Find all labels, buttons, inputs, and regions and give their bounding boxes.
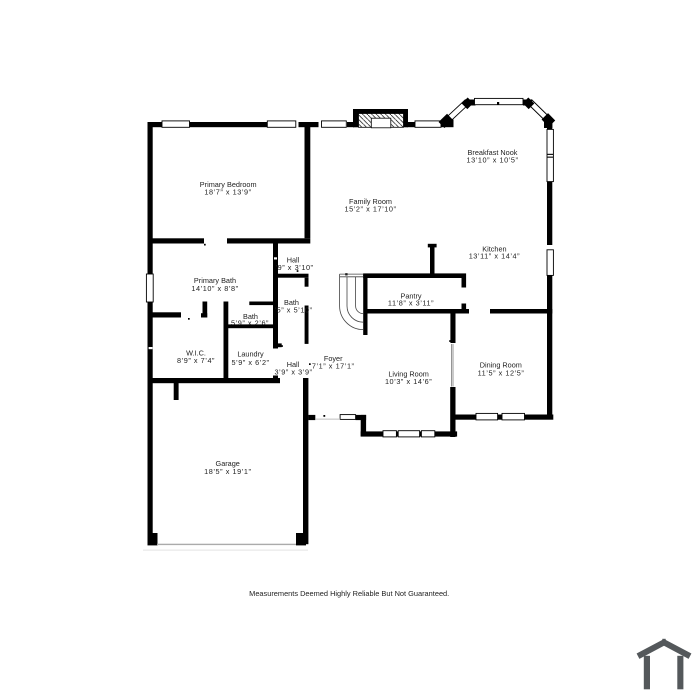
svg-text:13’11” x 14’4”: 13’11” x 14’4”: [469, 252, 520, 261]
svg-text:Measurements Deemed Highly Rel: Measurements Deemed Highly Reliable But …: [249, 589, 449, 598]
svg-text:18’5” x 19’1”: 18’5” x 19’1”: [204, 467, 251, 476]
svg-text:11’8” x 3’11”: 11’8” x 3’11”: [388, 299, 434, 308]
svg-text:’9” x 3’10”: ’9” x 3’10”: [275, 263, 313, 272]
svg-text:’5” x 5’10”: ’5” x 5’10”: [274, 306, 312, 315]
svg-text:8’9” x 7’4”: 8’9” x 7’4”: [177, 356, 215, 365]
svg-text:15’2” x 17’10”: 15’2” x 17’10”: [345, 205, 397, 214]
svg-text:11’5” x 12’5”: 11’5” x 12’5”: [478, 368, 525, 377]
svg-text:14’10” x 8’8”: 14’10” x 8’8”: [191, 284, 238, 293]
svg-text:7’1” x 17’1”: 7’1” x 17’1”: [312, 362, 355, 371]
svg-text:5’9” x 6’2”: 5’9” x 6’2”: [231, 358, 269, 367]
svg-text:3’9” x 3’9”: 3’9” x 3’9”: [274, 367, 312, 376]
svg-text:13’10” x 10’5”: 13’10” x 10’5”: [467, 156, 519, 165]
svg-text:18’7” x 13’9”: 18’7” x 13’9”: [204, 188, 251, 197]
svg-text:10’3” x 14’6”: 10’3” x 14’6”: [385, 377, 432, 386]
